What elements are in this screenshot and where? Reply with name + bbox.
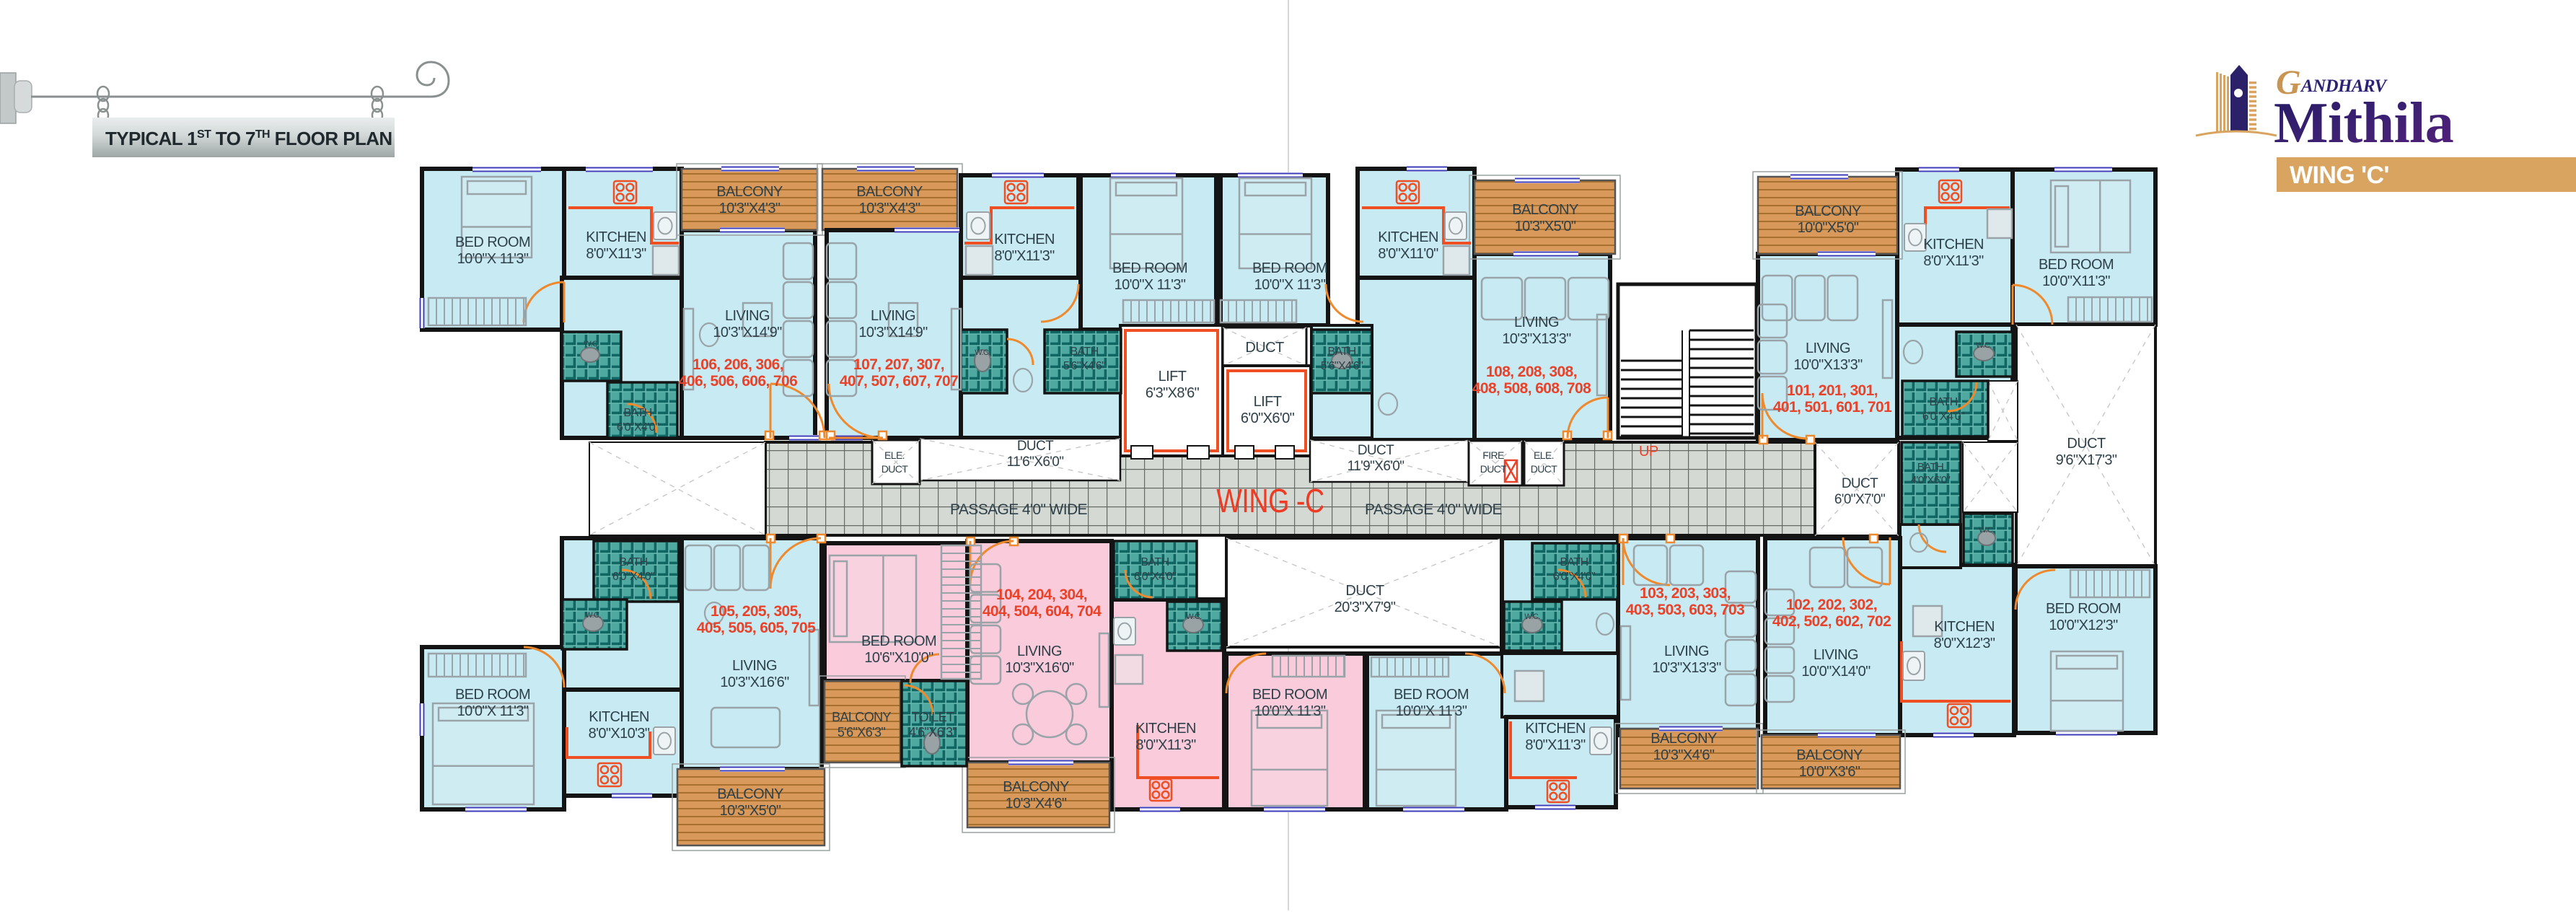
svg-text:DUCT: DUCT [882,463,909,475]
svg-text:408, 508, 608, 708: 408, 508, 608, 708 [1472,380,1591,397]
svg-text:W.C.: W.C. [1979,526,1995,535]
svg-text:406, 506, 606, 706: 406, 506, 606, 706 [679,373,797,390]
svg-text:10'0"X13'3": 10'0"X13'3" [1793,357,1863,373]
svg-text:KITCHEN: KITCHEN [1135,721,1196,737]
svg-text:BED ROOM: BED ROOM [2046,601,2121,617]
svg-text:KITCHEN: KITCHEN [994,232,1055,247]
svg-text:BATH: BATH [619,556,647,568]
svg-text:6'3"X8'6": 6'3"X8'6" [1146,385,1200,401]
svg-text:DUCT: DUCT [1017,439,1054,454]
svg-text:DUCT: DUCT [2067,436,2106,452]
svg-text:BATH: BATH [623,407,651,419]
svg-text:BALCONY: BALCONY [1795,203,1861,219]
svg-text:10'0"X5'0": 10'0"X5'0" [1798,220,1859,236]
svg-text:10'3"X14'9": 10'3"X14'9" [858,325,928,340]
svg-text:DUCT: DUCT [1531,463,1558,475]
svg-text:LIVING: LIVING [1664,643,1709,659]
svg-text:TOILET: TOILET [911,710,954,724]
svg-text:ELE.: ELE. [1534,449,1554,461]
svg-text:101, 201, 301,: 101, 201, 301, [1787,382,1878,399]
svg-text:10'0"X11'3": 10'0"X11'3" [2042,273,2110,289]
svg-text:BED ROOM: BED ROOM [1252,687,1327,703]
svg-text:WING -C: WING -C [1216,482,1324,519]
svg-text:BALCONY: BALCONY [717,786,783,802]
svg-text:8'0"X12'3": 8'0"X12'3" [1934,636,1995,651]
svg-text:10'0"X 11'3": 10'0"X 11'3" [457,703,529,719]
svg-text:10'0"X14'0": 10'0"X14'0" [1801,664,1871,680]
svg-text:105, 205, 305,: 105, 205, 305, [711,603,801,620]
svg-text:10'3"X4'6": 10'3"X4'6" [1653,747,1715,763]
svg-text:401, 501, 601, 701: 401, 501, 601, 701 [1773,399,1892,416]
svg-text:BED ROOM: BED ROOM [1394,687,1469,703]
svg-text:W.C.: W.C. [1524,612,1540,621]
svg-text:BALCONY: BALCONY [716,184,783,200]
svg-text:10'3"X13'3": 10'3"X13'3" [1652,660,1721,676]
svg-text:WING 'C': WING 'C' [2290,162,2389,189]
svg-text:KITCHEN: KITCHEN [1923,237,1984,252]
svg-text:BALCONY: BALCONY [1650,731,1717,747]
svg-text:6'0"X7'0": 6'0"X7'0" [1834,492,1885,507]
svg-text:BED ROOM: BED ROOM [2039,257,2114,273]
svg-text:LIVING: LIVING [1814,647,1858,663]
svg-text:10'0"X 11'3": 10'0"X 11'3" [1396,703,1467,719]
svg-text:104, 204, 304,: 104, 204, 304, [996,586,1087,603]
svg-text:LIVING: LIVING [1806,340,1850,356]
svg-text:8'0"X11'3": 8'0"X11'3" [1525,737,1586,753]
svg-text:BALCONY: BALCONY [1512,202,1578,218]
svg-text:10'3"X4'3": 10'3"X4'3" [719,201,781,216]
svg-text:6'0"X4'0": 6'0"X4'0" [1134,571,1176,583]
svg-text:BALCONY: BALCONY [1796,747,1863,763]
svg-text:W.C.: W.C. [1976,341,1992,350]
svg-text:405, 505, 605, 705: 405, 505, 605, 705 [697,620,816,636]
svg-text:403, 503, 603, 703: 403, 503, 603, 703 [1626,602,1744,618]
svg-text:108, 208, 308,: 108, 208, 308, [1486,364,1577,380]
svg-text:W.C.: W.C. [1186,612,1202,621]
svg-text:BED ROOM: BED ROOM [861,633,936,649]
svg-text:6'0"X4'0": 6'0"X4'0" [1922,410,1964,423]
svg-text:DUCT: DUCT [1345,583,1384,599]
svg-text:10'3"X16'0": 10'3"X16'0" [1005,660,1074,676]
svg-text:BALCONY: BALCONY [1003,779,1069,795]
svg-text:102, 202, 302,: 102, 202, 302, [1786,597,1877,613]
svg-text:4'6"X6'3": 4'6"X6'3" [909,725,957,739]
svg-text:LIVING: LIVING [732,658,777,674]
svg-text:10'0"X 11'3": 10'0"X 11'3" [457,251,529,267]
svg-text:BED ROOM: BED ROOM [455,234,530,250]
svg-text:KITCHEN: KITCHEN [1934,619,1995,635]
svg-text:8'0"X11'0": 8'0"X11'0" [1378,246,1438,262]
svg-text:103, 203, 303,: 103, 203, 303, [1640,585,1731,602]
svg-text:6'0"X4'0": 6'0"X4'0" [617,421,659,434]
svg-text:W.C.: W.C. [585,611,601,620]
svg-text:20'3"X7'9": 20'3"X7'9" [1335,599,1396,615]
svg-text:LIVING: LIVING [1017,643,1062,659]
svg-text:5'6"X6'3": 5'6"X6'3" [838,725,886,739]
svg-text:9'6"X17'3": 9'6"X17'3" [2056,452,2117,468]
svg-text:BATH: BATH [1560,556,1588,568]
svg-text:LIVING: LIVING [725,308,770,324]
svg-text:11'9"X6'0": 11'9"X6'0" [1348,459,1405,474]
svg-text:8'0"X11'3": 8'0"X11'3" [586,246,646,262]
svg-text:KITCHEN: KITCHEN [1525,721,1586,737]
svg-text:BALCONY: BALCONY [856,184,923,200]
svg-text:PASSAGE 4'0" WIDE: PASSAGE 4'0" WIDE [950,501,1088,518]
svg-text:Mithila: Mithila [2274,92,2453,155]
svg-text:LIVING: LIVING [871,308,915,324]
svg-text:BATH: BATH [1929,396,1957,408]
svg-text:BATH: BATH [1917,461,1944,473]
svg-text:8'0"X11'3": 8'0"X11'3" [1135,737,1196,753]
svg-text:KITCHEN: KITCHEN [586,229,646,245]
svg-text:TYPICAL 1ST TO 7TH FLOOR PLAN: TYPICAL 1ST TO 7TH FLOOR PLAN [105,128,392,149]
svg-text:LIVING: LIVING [1514,315,1559,330]
svg-text:LIFT: LIFT [1159,369,1187,385]
svg-text:402, 502, 602, 702: 402, 502, 602, 702 [1772,613,1891,630]
svg-text:DUCT: DUCT [1480,463,1508,475]
svg-text:106, 206, 306,: 106, 206, 306, [693,356,783,373]
svg-text:UP: UP [1639,444,1658,460]
svg-text:W.C.: W.C. [584,340,599,348]
svg-text:LIFT: LIFT [1254,394,1282,410]
svg-text:DUCT: DUCT [1358,443,1394,458]
svg-text:BED ROOM: BED ROOM [1112,260,1187,276]
svg-text:10'3"X14'9": 10'3"X14'9" [713,325,782,340]
svg-text:KITCHEN: KITCHEN [1378,229,1438,245]
svg-text:5'6"X4'6": 5'6"X4'6" [1321,360,1363,372]
svg-text:W.C.: W.C. [975,348,990,357]
svg-text:10'0"X 11'3": 10'0"X 11'3" [1254,277,1326,293]
svg-text:404, 504, 604, 704: 404, 504, 604, 704 [983,603,1102,620]
svg-text:5'6"X4'6": 5'6"X4'6" [1063,360,1105,372]
svg-text:10'0"X12'3": 10'0"X12'3" [2049,618,2118,633]
svg-text:10'3"X5'0": 10'3"X5'0" [1515,219,1576,234]
svg-text:6'0"X4'0": 6'0"X4'0" [1553,571,1595,583]
svg-text:BED ROOM: BED ROOM [1252,260,1327,276]
svg-text:8'0"X10'3": 8'0"X10'3" [589,726,650,742]
svg-text:8'0"X11'3": 8'0"X11'3" [1923,253,1984,269]
svg-text:10'0"X 11'3": 10'0"X 11'3" [1115,277,1186,293]
svg-text:BATH: BATH [1070,346,1098,358]
svg-text:10'3"X5'0": 10'3"X5'0" [720,803,781,819]
svg-text:6'0"X4'0": 6'0"X4'0" [612,571,654,583]
svg-text:10'3"X4'6": 10'3"X4'6" [1006,796,1067,812]
svg-text:4'0"X6'0": 4'0"X6'0" [1911,474,1951,486]
svg-text:10'6"X10'0": 10'6"X10'0" [864,650,933,666]
svg-text:6'0"X6'0": 6'0"X6'0" [1241,410,1295,426]
svg-text:DUCT: DUCT [1245,340,1284,356]
svg-text:10'0"X 11'3": 10'0"X 11'3" [1254,703,1326,719]
svg-text:407, 507, 607, 707: 407, 507, 607, 707 [840,373,958,390]
svg-text:10'3"X4'3": 10'3"X4'3" [859,201,920,216]
svg-text:BATH: BATH [1327,346,1355,358]
svg-text:10'3"X16'6": 10'3"X16'6" [720,674,789,690]
svg-text:KITCHEN: KITCHEN [589,709,649,725]
svg-text:8'0"X11'3": 8'0"X11'3" [994,248,1055,264]
svg-text:DUCT: DUCT [1842,476,1878,491]
svg-text:BALCONY: BALCONY [832,710,891,724]
svg-text:11'6"X6'0": 11'6"X6'0" [1007,454,1064,470]
svg-text:ELE.: ELE. [884,449,905,461]
svg-text:BED ROOM: BED ROOM [455,687,530,703]
svg-text:107, 207, 307,: 107, 207, 307, [853,356,944,373]
svg-text:BATH: BATH [1140,556,1169,568]
svg-text:FIRE: FIRE [1482,449,1504,461]
svg-text:PASSAGE 4'0" WIDE: PASSAGE 4'0" WIDE [1365,501,1503,518]
svg-text:10'0"X3'6": 10'0"X3'6" [1799,764,1860,780]
svg-text:10'3"X13'3": 10'3"X13'3" [1502,331,1571,347]
